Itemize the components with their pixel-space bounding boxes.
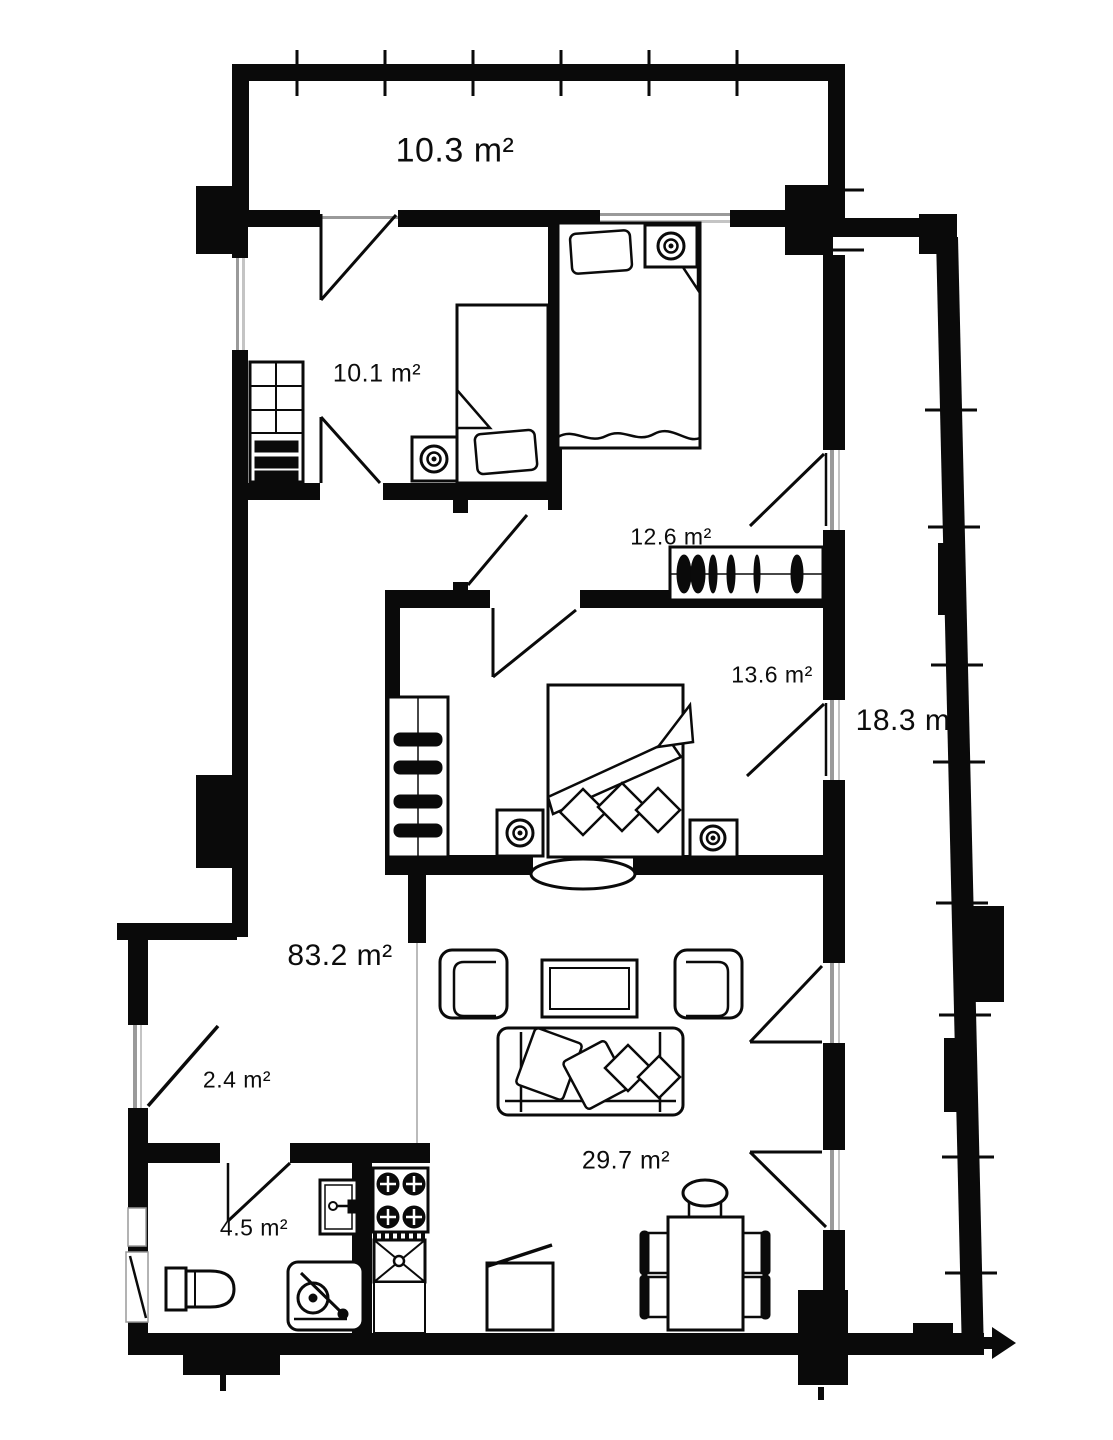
arched-opening bbox=[531, 859, 635, 889]
double-bed-icon bbox=[548, 685, 693, 857]
living-room-furniture bbox=[440, 950, 742, 1115]
room-label-kitchen-dining: 29.7 m² bbox=[582, 1147, 670, 1176]
wardrobe-icon bbox=[670, 547, 823, 600]
room-label-living-room: 83.2 m² bbox=[287, 939, 392, 973]
wardrobe-icon bbox=[250, 362, 303, 482]
side-balcony-walls bbox=[833, 214, 1016, 1359]
wall-niche bbox=[126, 1208, 148, 1322]
room-label-side-balcony: 18.3 m bbox=[856, 704, 951, 738]
kitchen-island-icon bbox=[487, 1245, 553, 1330]
stove-icon bbox=[373, 1168, 428, 1236]
dining-set-icon bbox=[640, 1180, 770, 1330]
bathroom-fixtures bbox=[166, 1180, 363, 1330]
toilet-icon bbox=[166, 1268, 234, 1310]
nightstand-lamp-icon bbox=[497, 810, 543, 856]
outer-walls bbox=[117, 64, 848, 1400]
bedroom-small-furniture bbox=[250, 305, 548, 483]
armchair-icon bbox=[675, 950, 742, 1018]
nightstand-lamp-icon bbox=[690, 820, 737, 857]
nightstand-lamp-icon bbox=[412, 437, 457, 481]
single-bed-icon bbox=[457, 305, 548, 483]
kitchen-fixtures bbox=[373, 1168, 770, 1333]
floor-plan: 10.3 m² 10.1 m² 12.6 m² 13.6 m² 83.2 m² … bbox=[0, 0, 1113, 1440]
wardrobe-icon bbox=[388, 697, 448, 857]
room-label-bathroom: 4.5 m² bbox=[220, 1215, 288, 1242]
room-label-bedroom-large: 13.6 m² bbox=[731, 662, 812, 689]
room-label-entry-hall: 2.4 m² bbox=[203, 1067, 271, 1094]
washbasin-icon bbox=[320, 1180, 357, 1234]
kitchen-sink-icon bbox=[374, 1240, 425, 1282]
shower-icon bbox=[288, 1262, 363, 1330]
bedroom-large-furniture bbox=[388, 685, 737, 857]
nightstand-lamp-icon bbox=[645, 225, 697, 267]
room-label-bedroom-middle: 12.6 m² bbox=[630, 524, 711, 551]
armchair-icon bbox=[440, 950, 507, 1018]
kitchen-counter bbox=[374, 1282, 425, 1333]
coffee-table-icon bbox=[542, 960, 637, 1017]
room-label-bedroom-small: 10.1 m² bbox=[333, 360, 421, 389]
sofa-icon bbox=[498, 1027, 683, 1115]
room-label-top-balcony: 10.3 m² bbox=[396, 132, 515, 171]
